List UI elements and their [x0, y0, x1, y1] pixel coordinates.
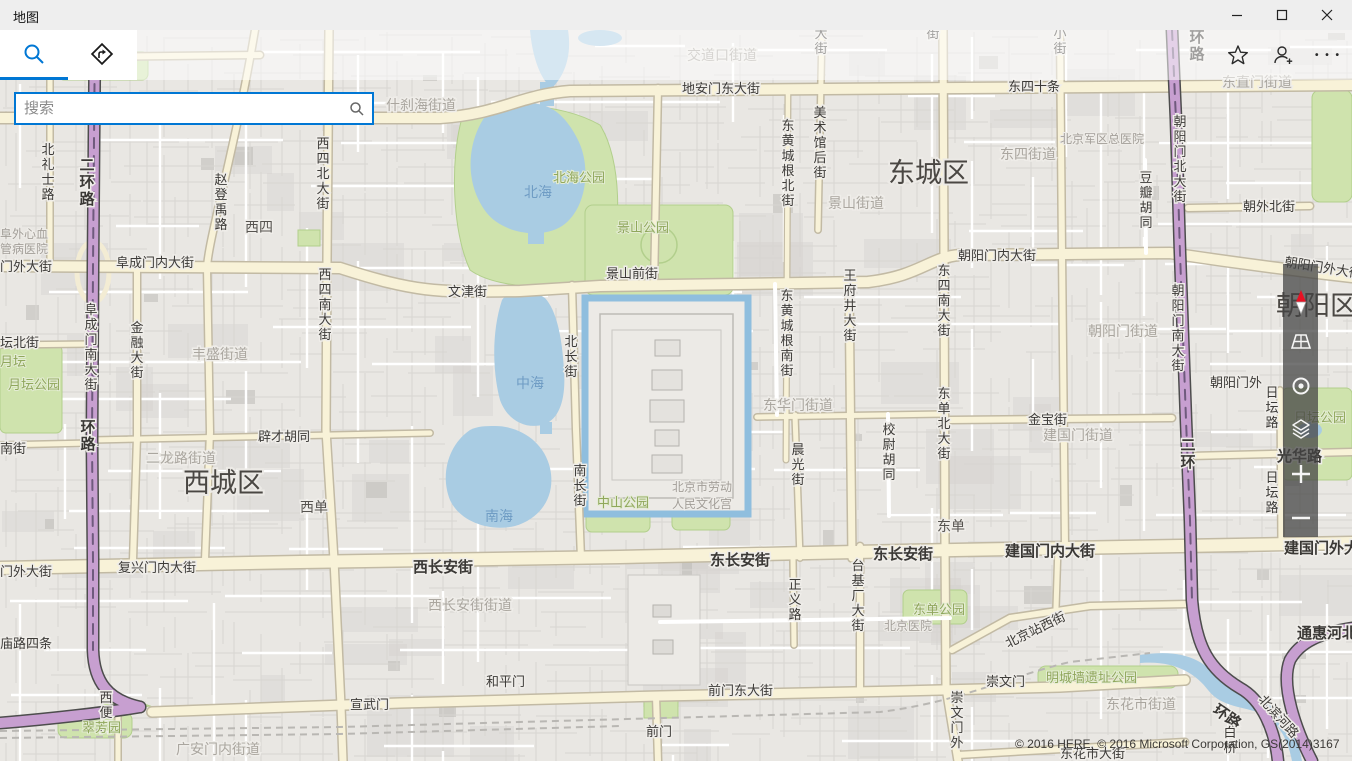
map-label: 什刹海街道: [386, 97, 456, 113]
map-label: 翠芳园: [82, 720, 121, 735]
map-label: 朝阳门北大街: [1173, 114, 1186, 204]
map-label: 明城墙遗址公园: [1046, 670, 1137, 685]
map-label: 二龙路街道: [146, 450, 216, 466]
map-label: 南海: [485, 508, 513, 524]
map-views-button[interactable]: [1283, 409, 1318, 449]
map-label: 西长安街街道: [428, 597, 512, 613]
search-icon: [22, 42, 46, 66]
map-label: 东单: [937, 518, 965, 534]
map-label: 朝阳门南大街: [1171, 283, 1184, 373]
map-label: 北海: [524, 184, 552, 200]
tilt-button[interactable]: [1283, 322, 1318, 362]
map-label: 月坛: [0, 354, 26, 369]
map-label: 西四南大街: [318, 267, 331, 342]
map-label: 西长安街: [413, 558, 473, 576]
map-label: 通惠河北: [1297, 624, 1352, 642]
map-label: 崇文门: [986, 674, 1025, 689]
map-label: 东黄城根南街: [780, 288, 793, 378]
map-label: 东四十条: [1008, 79, 1060, 94]
map-label: 和平门: [486, 674, 525, 689]
map-label: 金融大街: [130, 320, 143, 380]
maximize-button[interactable]: [1259, 0, 1304, 30]
map-label: 东单北大街: [937, 386, 950, 461]
map-label: 前门: [646, 724, 672, 739]
map-label: 景山公园: [617, 220, 669, 235]
map-label: 辟才胡同: [258, 429, 310, 444]
active-tab-indicator: [0, 77, 68, 80]
people-button[interactable]: [1263, 36, 1303, 74]
map-label: 复兴门内大街: [118, 560, 196, 575]
map-label: 宣武门: [350, 697, 389, 712]
map-label: 北京军区总医院: [1060, 132, 1144, 146]
star-icon: [1227, 44, 1249, 66]
map-label: 建国门内大街: [1005, 542, 1095, 560]
map-label: 朝外北街: [1243, 199, 1295, 214]
compass-button[interactable]: [1283, 282, 1318, 322]
map-label: 西四北大街: [316, 136, 329, 211]
close-icon: [1321, 9, 1333, 21]
map-label: 北长街: [564, 334, 577, 379]
locate-icon: [1290, 375, 1312, 397]
map-label: 阜成门南大街: [84, 302, 97, 392]
my-location-button[interactable]: [1283, 366, 1318, 406]
map-label: 管病医院: [0, 241, 48, 256]
map-label: 丰盛街道: [192, 346, 248, 362]
map-label: 阜成门内大街: [116, 255, 194, 270]
map-label: 北京市劳动: [672, 479, 732, 494]
map-label: 美术馆后街: [813, 105, 826, 180]
tilt-icon: [1289, 332, 1313, 352]
window-title: 地图: [13, 7, 39, 26]
map-label: 东单公园: [913, 602, 965, 617]
close-button[interactable]: [1304, 0, 1349, 30]
map-label: 南长街: [573, 463, 586, 508]
map-label: 北京医院: [884, 619, 932, 633]
map-label: 正义路: [788, 577, 801, 622]
map-label: 坛北街: [0, 335, 39, 350]
map-controls-panel: [1283, 264, 1318, 537]
search-input[interactable]: [16, 100, 342, 117]
map-label: 二环: [1180, 437, 1195, 471]
map-label: 东华门街道: [763, 397, 833, 413]
search-box: [14, 92, 374, 125]
map-label: 中山公园: [597, 495, 649, 510]
map-label: 朝阳门外: [1210, 375, 1262, 390]
map-label: 文津街: [448, 284, 487, 299]
map-label: 东城区: [888, 158, 969, 188]
map-label: 日坛路: [1265, 385, 1278, 430]
map-label: 二环路: [79, 157, 95, 208]
map-label: 王府井大街: [843, 268, 856, 343]
map-label: 景山街道: [828, 195, 884, 211]
map-label: 西四: [245, 219, 273, 235]
map-label: 校尉胡同: [882, 422, 895, 482]
map-label: 门外大街: [0, 564, 52, 579]
minimize-icon: [1231, 9, 1243, 21]
map-label: 朝阳门内大街: [958, 248, 1036, 263]
map-label: 广安门内街道: [176, 741, 260, 757]
map-label: 东长安街: [873, 545, 933, 563]
map-label: 晨光街: [791, 442, 804, 487]
map-label: 建国门外大街: [1284, 539, 1352, 557]
maps-app-window: 地安门东大街东四十条东直门街道交道口街道什刹海街道园公园小街环路北京军区总医院东…: [0, 0, 1352, 761]
map-label: 阜外心血: [0, 227, 48, 241]
tab-search[interactable]: [0, 30, 68, 77]
title-bar: 地图: [0, 0, 1352, 30]
minimize-button[interactable]: [1214, 0, 1259, 30]
map-label: 中海: [516, 375, 544, 391]
map-label: 西城区: [183, 468, 264, 498]
zoom-out-button[interactable]: [1283, 498, 1318, 538]
search-submit-icon[interactable]: [342, 101, 372, 117]
map-label: 西单: [300, 499, 328, 515]
compass-icon: [1293, 289, 1309, 315]
map-label: 庙路四条: [0, 636, 52, 651]
more-button[interactable]: • • •: [1308, 36, 1348, 74]
map-label: 豆瓣胡同: [1139, 170, 1152, 230]
map-label: 东长安街: [710, 551, 770, 569]
ellipsis-icon: • • •: [1315, 50, 1341, 61]
map-label: 地安门东大街: [682, 81, 760, 96]
zoom-in-button[interactable]: [1283, 454, 1318, 494]
map-label: 环路: [80, 419, 96, 453]
favorites-button[interactable]: [1218, 36, 1258, 74]
maximize-icon: [1276, 9, 1288, 21]
directions-icon: [89, 41, 115, 67]
map-label: 崇文门外: [950, 690, 963, 750]
map-attribution: © 2016 HERE, © 2016 Microsoft Corporatio…: [1015, 737, 1340, 751]
map-label: 东花市街道: [1106, 696, 1176, 712]
layers-icon: [1290, 418, 1312, 440]
plus-icon: [1291, 464, 1311, 484]
map-label: 前门东大街: [708, 683, 773, 698]
minus-icon: [1291, 508, 1311, 528]
map-canvas[interactable]: 地安门东大街东四十条东直门街道交道口街道什刹海街道园公园小街环路北京军区总医院东…: [0, 30, 1352, 761]
map-label: 坛南街: [0, 441, 26, 456]
map-label: 人民文化宫: [672, 496, 732, 511]
map-label: 建国门街道: [1043, 427, 1113, 443]
map-label: 日坛路: [1265, 470, 1278, 515]
toolbar-overlay: [0, 30, 1352, 80]
map-label: 东四街道: [1000, 146, 1056, 162]
map-label: 金宝街: [1028, 412, 1067, 427]
map-label: 东四南大街: [937, 263, 950, 338]
map-label: 月坛公园: [8, 377, 60, 392]
person-add-icon: [1271, 43, 1295, 67]
map-label: 北礼士路: [41, 142, 54, 202]
tab-directions[interactable]: [68, 30, 136, 77]
map-label: 东黄城根北街: [781, 118, 794, 208]
map-label: 景山前街: [606, 266, 658, 281]
map-label: 北海公园: [553, 170, 605, 185]
map-label: 赵登禹路: [214, 172, 227, 232]
map-label: 朝阳门街道: [1088, 323, 1158, 339]
map-label: 台基厂大街: [851, 558, 864, 633]
map-label: 门外大街: [0, 259, 52, 274]
